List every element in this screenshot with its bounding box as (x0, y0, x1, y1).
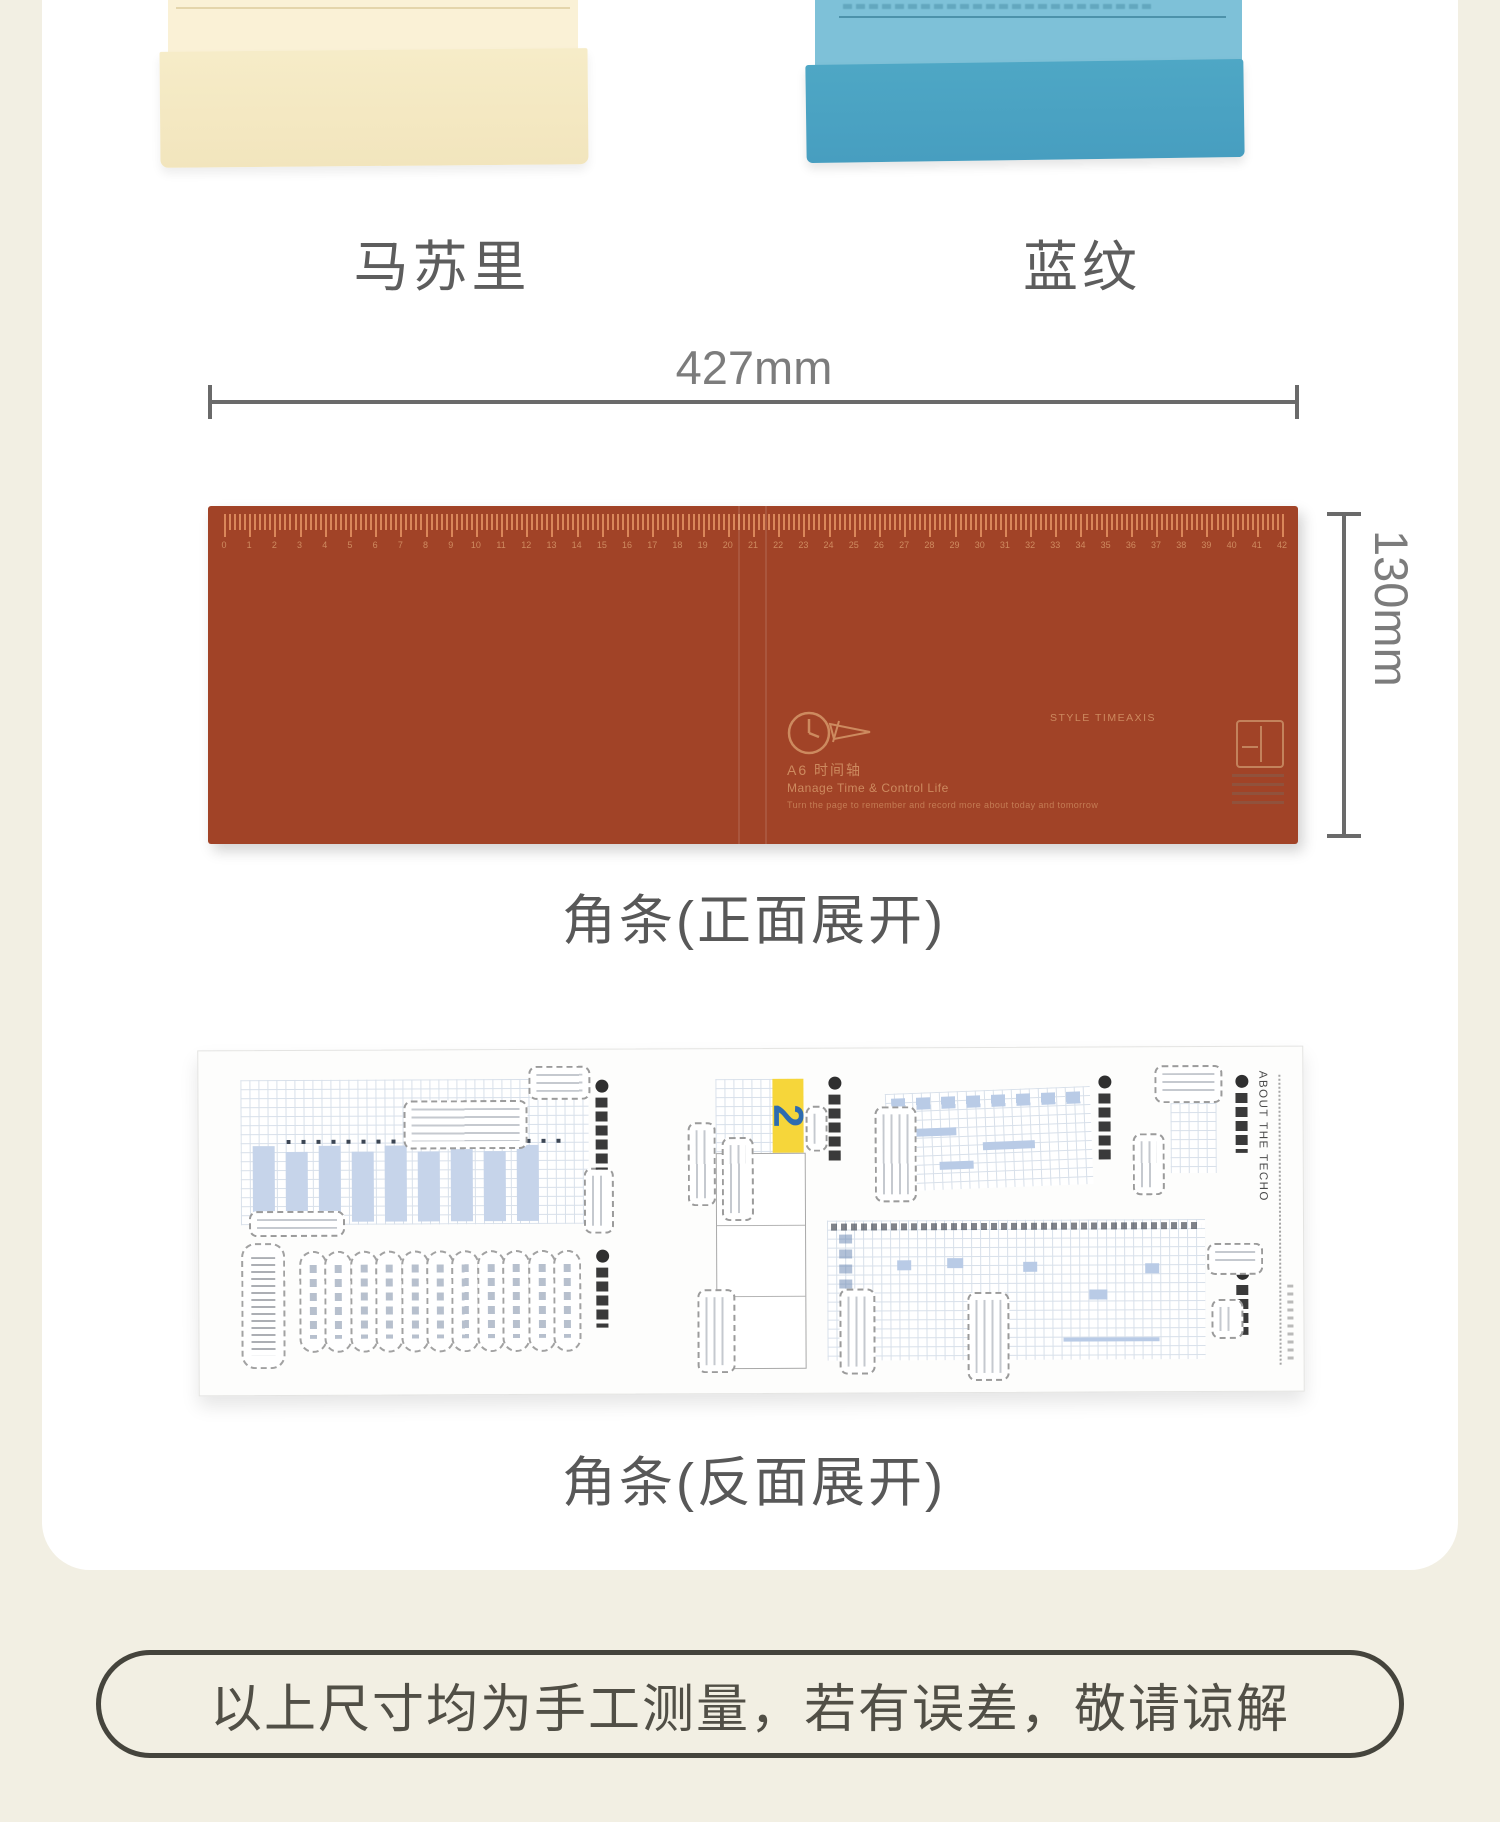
ruler-number: 24 (824, 540, 834, 550)
ruler-tick (652, 514, 654, 537)
ruler-number: 19 (698, 540, 708, 550)
ruler-tick (693, 514, 695, 530)
ruler-tick (813, 514, 815, 530)
timeline-bar (484, 1151, 506, 1221)
ruler-tick (688, 514, 690, 530)
style-label: STYLE TIMEAXIS (1050, 712, 1156, 724)
label-capsule (401, 1250, 429, 1352)
ruler-tick (1080, 514, 1082, 537)
callout-bubble (1133, 1133, 1165, 1195)
ruler-tick (753, 514, 755, 537)
callout-bubble (249, 1211, 345, 1237)
ruler-tick (1146, 514, 1148, 530)
cover-seam-line (176, 7, 570, 9)
ruler-tick (335, 514, 337, 530)
brand-stamp-icon (1236, 720, 1284, 768)
corner-strip-back-image: 2 (197, 1046, 1304, 1397)
ruler-number: 12 (521, 540, 531, 550)
ruler-tick (426, 514, 428, 537)
callout-bubble (1207, 1243, 1263, 1275)
ruler-number: 21 (748, 540, 758, 550)
ruler-tick (269, 514, 271, 530)
ruler-tick (924, 514, 926, 530)
ruler-tick (451, 514, 453, 537)
ruler-tick (1201, 514, 1203, 530)
ruler-tick (783, 514, 785, 530)
ruler-tick (1206, 514, 1208, 537)
ruler-tick (1222, 514, 1224, 530)
callout-bubble (805, 1106, 827, 1152)
ruler-tick (456, 514, 458, 530)
ruler-tick (1055, 514, 1057, 537)
ruler-tick (1267, 514, 1269, 530)
ruler-tick (642, 514, 644, 530)
ruler-number: 16 (622, 540, 632, 550)
ruler-tick (360, 514, 362, 530)
ruler-tick (1091, 514, 1093, 530)
ruler-tick (829, 514, 831, 537)
ruler-tick (1060, 514, 1062, 530)
ruler-tick (491, 514, 493, 530)
height-dimension-label: 130mm (1364, 530, 1419, 820)
ruler-number: 10 (471, 540, 481, 550)
callout-bubble (528, 1066, 590, 1100)
ruler-tick (803, 514, 805, 537)
ruler-tick (718, 514, 720, 530)
ruler-tick (1166, 514, 1168, 530)
ruler-tick (970, 514, 972, 530)
ruler-number: 11 (496, 540, 505, 550)
ruler-tick (758, 514, 760, 530)
vertical-micro-text (1287, 1285, 1293, 1363)
ruler-tick (778, 514, 780, 537)
ruler-tick (249, 514, 251, 537)
ruler-tick (884, 514, 886, 530)
ruler-tick (743, 514, 745, 530)
dimension-endcap (1327, 834, 1361, 838)
ruler-tick (934, 514, 936, 530)
ruler-number: 33 (1050, 540, 1060, 550)
ruler-tick (990, 514, 992, 530)
ruler-tick (1111, 514, 1113, 530)
ruler-tick (944, 514, 946, 530)
ruler-tick (889, 514, 891, 530)
ruler-tick (949, 514, 951, 530)
product-name-cream: 马苏里 (227, 222, 657, 302)
ruler-tick (1075, 514, 1077, 530)
ruler-tick (305, 514, 307, 530)
strip-series-title: A6 时间轴 (787, 760, 862, 780)
ruler-tick (713, 514, 715, 530)
ruler-tick (310, 514, 312, 530)
ruler-tick (647, 514, 649, 530)
ruler-number: 20 (723, 540, 733, 550)
ruler-tick (284, 514, 286, 530)
callout-bubble (688, 1122, 716, 1206)
ruler-tick (657, 514, 659, 530)
ruler-tick (415, 514, 417, 530)
ruler-tick (1035, 514, 1037, 530)
ruler-tick (793, 514, 795, 530)
section-marker (1235, 1075, 1249, 1153)
product-name-blue: 蓝纹 (867, 222, 1297, 302)
callout-bubble (875, 1106, 917, 1202)
ruler-tick (229, 514, 231, 530)
ruler-tick (1126, 514, 1128, 530)
ruler-tick (899, 514, 901, 530)
ruler-tick (919, 514, 921, 530)
cream-cover-flap (160, 48, 589, 168)
ruler-tick (1101, 514, 1103, 530)
ruler-tick (985, 514, 987, 530)
ruler-tick (773, 514, 775, 530)
timeline-bar (385, 1146, 407, 1222)
ruler-tick (410, 514, 412, 530)
strip-subtitle: Manage Time & Control Life (787, 781, 949, 795)
ruler-tick (723, 514, 725, 530)
ruler-tick (929, 514, 931, 537)
ruler-tick (526, 514, 528, 537)
ruler-tick (617, 514, 619, 530)
ruler-tick (385, 514, 387, 530)
ruler-tick (965, 514, 967, 530)
ruler-tick (975, 514, 977, 530)
ruler-number: 22 (773, 540, 783, 550)
ruler-tick (325, 514, 327, 537)
ruler-tick (471, 514, 473, 530)
ruler-tick (441, 514, 443, 530)
label-capsule (241, 1243, 286, 1369)
label-capsule (502, 1250, 530, 1352)
ruler-tick (612, 514, 614, 530)
ruler-tick (939, 514, 941, 530)
ruler-number: 41 (1252, 540, 1262, 550)
ruler-tick (446, 514, 448, 530)
ruler-tick (562, 514, 564, 530)
ruler-tick (637, 514, 639, 530)
stamp-caption-lines (1232, 774, 1284, 804)
ruler-tick (1176, 514, 1178, 530)
ruler-tick (1196, 514, 1198, 530)
label-capsule (325, 1251, 353, 1353)
ruler-number: 25 (849, 540, 859, 550)
ruler-tick (516, 514, 518, 530)
ruler-tick (300, 514, 302, 537)
ruler-tick (980, 514, 982, 537)
ruler-tick (597, 514, 599, 530)
ruler-tick (506, 514, 508, 530)
ruler-tick (768, 514, 770, 530)
ruler-tick (698, 514, 700, 530)
ruler-tick (1131, 514, 1133, 537)
ruler-tick (1232, 514, 1234, 537)
ruler-number: 23 (798, 540, 808, 550)
ruler-tick (859, 514, 861, 530)
ruler-tick (395, 514, 397, 530)
ruler-number: 13 (546, 540, 556, 550)
label-capsule (452, 1250, 480, 1352)
ruler-tick (592, 514, 594, 530)
timeline-bar (517, 1145, 539, 1221)
ruler-tick (818, 514, 820, 530)
label-capsule (350, 1251, 378, 1353)
ruler-number: 28 (924, 540, 934, 550)
ruler-tick (587, 514, 589, 530)
ruler-tick (677, 514, 679, 537)
ruler-number: 32 (1025, 540, 1035, 550)
ruler-tick (1045, 514, 1047, 530)
label-capsule-row (198, 1047, 1302, 1052)
label-capsule (528, 1250, 556, 1352)
ruler-tick (431, 514, 433, 530)
section-marker (595, 1080, 609, 1170)
ruler-tick (708, 514, 710, 530)
ruler-tick (486, 514, 488, 530)
ruler-tick (1186, 514, 1188, 530)
ruler-tick (1272, 514, 1274, 530)
ruler-tick (476, 514, 478, 537)
ruler-tick (1237, 514, 1239, 530)
ruler-tick (1277, 514, 1279, 530)
fold-line (765, 506, 767, 844)
ruler-tick (567, 514, 569, 530)
ruler-tick (854, 514, 856, 537)
ruler-number: 5 (347, 540, 352, 550)
ruler-tick (1252, 514, 1254, 530)
page-number-highlight: 2 (772, 1079, 803, 1153)
callout-bubble (722, 1137, 754, 1221)
ruler-tick (239, 514, 241, 530)
ruler-tick (808, 514, 810, 530)
ruler-tick (315, 514, 317, 530)
callout-bubble (839, 1288, 875, 1374)
callout-bubble (1211, 1299, 1243, 1339)
blue-cover-flap (805, 59, 1244, 163)
ruler-tick (330, 514, 332, 530)
ruler-tick (839, 514, 841, 530)
content-card: 马苏里 蓝纹 427mm 012345678910111213141516171… (42, 0, 1458, 1570)
fold-line (738, 506, 740, 844)
timeline-bar (418, 1151, 440, 1221)
ruler-tick (1141, 514, 1143, 530)
ruler-tick (531, 514, 533, 530)
ruler-tick (960, 514, 962, 530)
ruler-tick (254, 514, 256, 530)
label-capsule (375, 1251, 403, 1353)
ruler-tick (622, 514, 624, 530)
ruler-number: 36 (1126, 540, 1136, 550)
ruler-tick (834, 514, 836, 530)
ruler-number: 14 (572, 540, 582, 550)
ruler-number: 18 (672, 540, 682, 550)
ruler-tick (1247, 514, 1249, 530)
ruler-tick (546, 514, 548, 530)
ruler-number: 29 (950, 540, 960, 550)
dimension-endcap (1295, 385, 1299, 419)
ruler-tick (481, 514, 483, 530)
ruler-number: 7 (398, 540, 403, 550)
callout-bubble (1154, 1065, 1222, 1103)
ruler-tick (511, 514, 513, 530)
dimension-endcap (1327, 512, 1361, 516)
section-marker (596, 1250, 610, 1328)
ruler-tick (864, 514, 866, 530)
callout-bubble (697, 1289, 735, 1373)
ruler-tick (667, 514, 669, 530)
ruler-tick (1257, 514, 1259, 537)
ruler-number: 0 (221, 540, 226, 550)
ruler-tick (551, 514, 553, 537)
caption-front-strip: 角条(正面展开) (208, 876, 1300, 955)
ruler-tick (904, 514, 906, 537)
ruler-number: 9 (448, 540, 453, 550)
ruler-tick (496, 514, 498, 530)
ruler-number: 27 (899, 540, 909, 550)
ruler-number: 35 (1101, 540, 1111, 550)
ruler-tick (1191, 514, 1193, 530)
ruler-tick (1262, 514, 1264, 530)
ruler-tick (355, 514, 357, 530)
ruler-number: 42 (1277, 540, 1287, 550)
ruler-tick (682, 514, 684, 530)
product-detail-page: 马苏里 蓝纹 427mm 012345678910111213141516171… (0, 0, 1500, 1822)
ruler-tick (894, 514, 896, 530)
ruler-number: 15 (597, 540, 607, 550)
ruler-tick (501, 514, 503, 537)
ruler-tick (909, 514, 911, 530)
measurement-disclaimer: 以上尺寸均为手工测量，若有误差，敬请谅解 (96, 1650, 1404, 1758)
label-capsule (477, 1250, 505, 1352)
ruler-tick (370, 514, 372, 530)
ruler-tick (914, 514, 916, 530)
ruler-tick (259, 514, 261, 530)
ruler-tick (995, 514, 997, 530)
ruler-tick (582, 514, 584, 530)
cover-microtext (843, 4, 1152, 9)
ruler-tick (1181, 514, 1183, 537)
callout-bubble (967, 1292, 1009, 1381)
ruler-tick (1040, 514, 1042, 530)
ruler-tick (577, 514, 579, 537)
section-marker (828, 1077, 842, 1161)
ruler-tick (1171, 514, 1173, 530)
ruler-tick (1086, 514, 1088, 530)
ruler-tick (748, 514, 750, 530)
ruler-tick (632, 514, 634, 530)
ruler-tick (345, 514, 347, 530)
ruler-tick (1242, 514, 1244, 530)
section-marker (1098, 1075, 1112, 1159)
ruler-tick (572, 514, 574, 530)
ruler-tick (672, 514, 674, 530)
ruler-number: 39 (1201, 540, 1211, 550)
ruler-number: 4 (322, 540, 327, 550)
ruler-tick (1096, 514, 1098, 530)
ruler-tick (466, 514, 468, 530)
ruler-number: 34 (1075, 540, 1085, 550)
ruler-tick (1161, 514, 1163, 530)
ruler-tick (279, 514, 281, 530)
timeline-grid (827, 1219, 1206, 1361)
ruler-tick (844, 514, 846, 530)
ruler-tick (289, 514, 291, 530)
ruler-tick (234, 514, 236, 530)
ruler-tick (1156, 514, 1158, 537)
ruler-number: 40 (1227, 540, 1237, 550)
ruler-tick (1025, 514, 1027, 530)
ruler-tick (728, 514, 730, 537)
ruler-tick (788, 514, 790, 530)
ruler-tick (1121, 514, 1123, 530)
ruler-tick (461, 514, 463, 530)
ruler-tick (824, 514, 826, 530)
ruler-number: 30 (975, 540, 985, 550)
ruler-tick (274, 514, 276, 537)
ruler-number: 3 (297, 540, 302, 550)
caption-back-strip: 角条(反面展开) (208, 1438, 1300, 1517)
ruler-tick (627, 514, 629, 537)
dotted-divider (1278, 1075, 1281, 1365)
ruler-tick (1227, 514, 1229, 530)
timeline-bar (352, 1152, 374, 1222)
label-capsule (299, 1251, 327, 1353)
ruler-tick (602, 514, 604, 537)
ruler-tick (1065, 514, 1067, 530)
ruler-tick (1015, 514, 1017, 530)
ruler-number: 2 (272, 540, 277, 550)
ruler-tick (955, 514, 957, 537)
ruler-tick (869, 514, 871, 530)
about-the-techo-label: ABOUT THE TECHO (1256, 1071, 1269, 1271)
ruler-tick (541, 514, 543, 530)
ruler-tick (1010, 514, 1012, 530)
ruler-tick (607, 514, 609, 530)
ruler-tick (798, 514, 800, 530)
ruler-tick (224, 514, 226, 537)
ruler-tick (849, 514, 851, 530)
corner-strip-front-image: 0123456789101112131415161718192021222324… (208, 506, 1298, 844)
ruler-tick (1151, 514, 1153, 530)
ruler-tick (1070, 514, 1072, 530)
ruler-tick (350, 514, 352, 537)
width-dimension-label: 427mm (208, 340, 1300, 395)
ruler-number: 1 (247, 540, 252, 550)
ruler-tick (244, 514, 246, 530)
cover-seam-line (839, 16, 1226, 18)
ruler-tick (380, 514, 382, 530)
height-dimension-line (1342, 512, 1346, 838)
ruler-tick (295, 514, 297, 530)
callout-bubble (584, 1168, 614, 1234)
ruler-tick (733, 514, 735, 530)
ruler-tick (1217, 514, 1219, 530)
ruler-tick (420, 514, 422, 530)
ruler-tick (365, 514, 367, 530)
printed-ruler: 0123456789101112131415161718192021222324… (224, 514, 1282, 558)
ruler-tick (400, 514, 402, 537)
ruler-number: 6 (373, 540, 378, 550)
ruler-tick (340, 514, 342, 530)
ruler-tick (1050, 514, 1052, 530)
label-capsule (553, 1250, 581, 1352)
ruler-tick (390, 514, 392, 530)
ruler-number: 38 (1176, 540, 1186, 550)
ruler-tick (662, 514, 664, 530)
ruler-tick (1211, 514, 1213, 530)
callout-bubble (403, 1100, 527, 1150)
dimension-endcap (208, 385, 212, 419)
ruler-tick (405, 514, 407, 530)
